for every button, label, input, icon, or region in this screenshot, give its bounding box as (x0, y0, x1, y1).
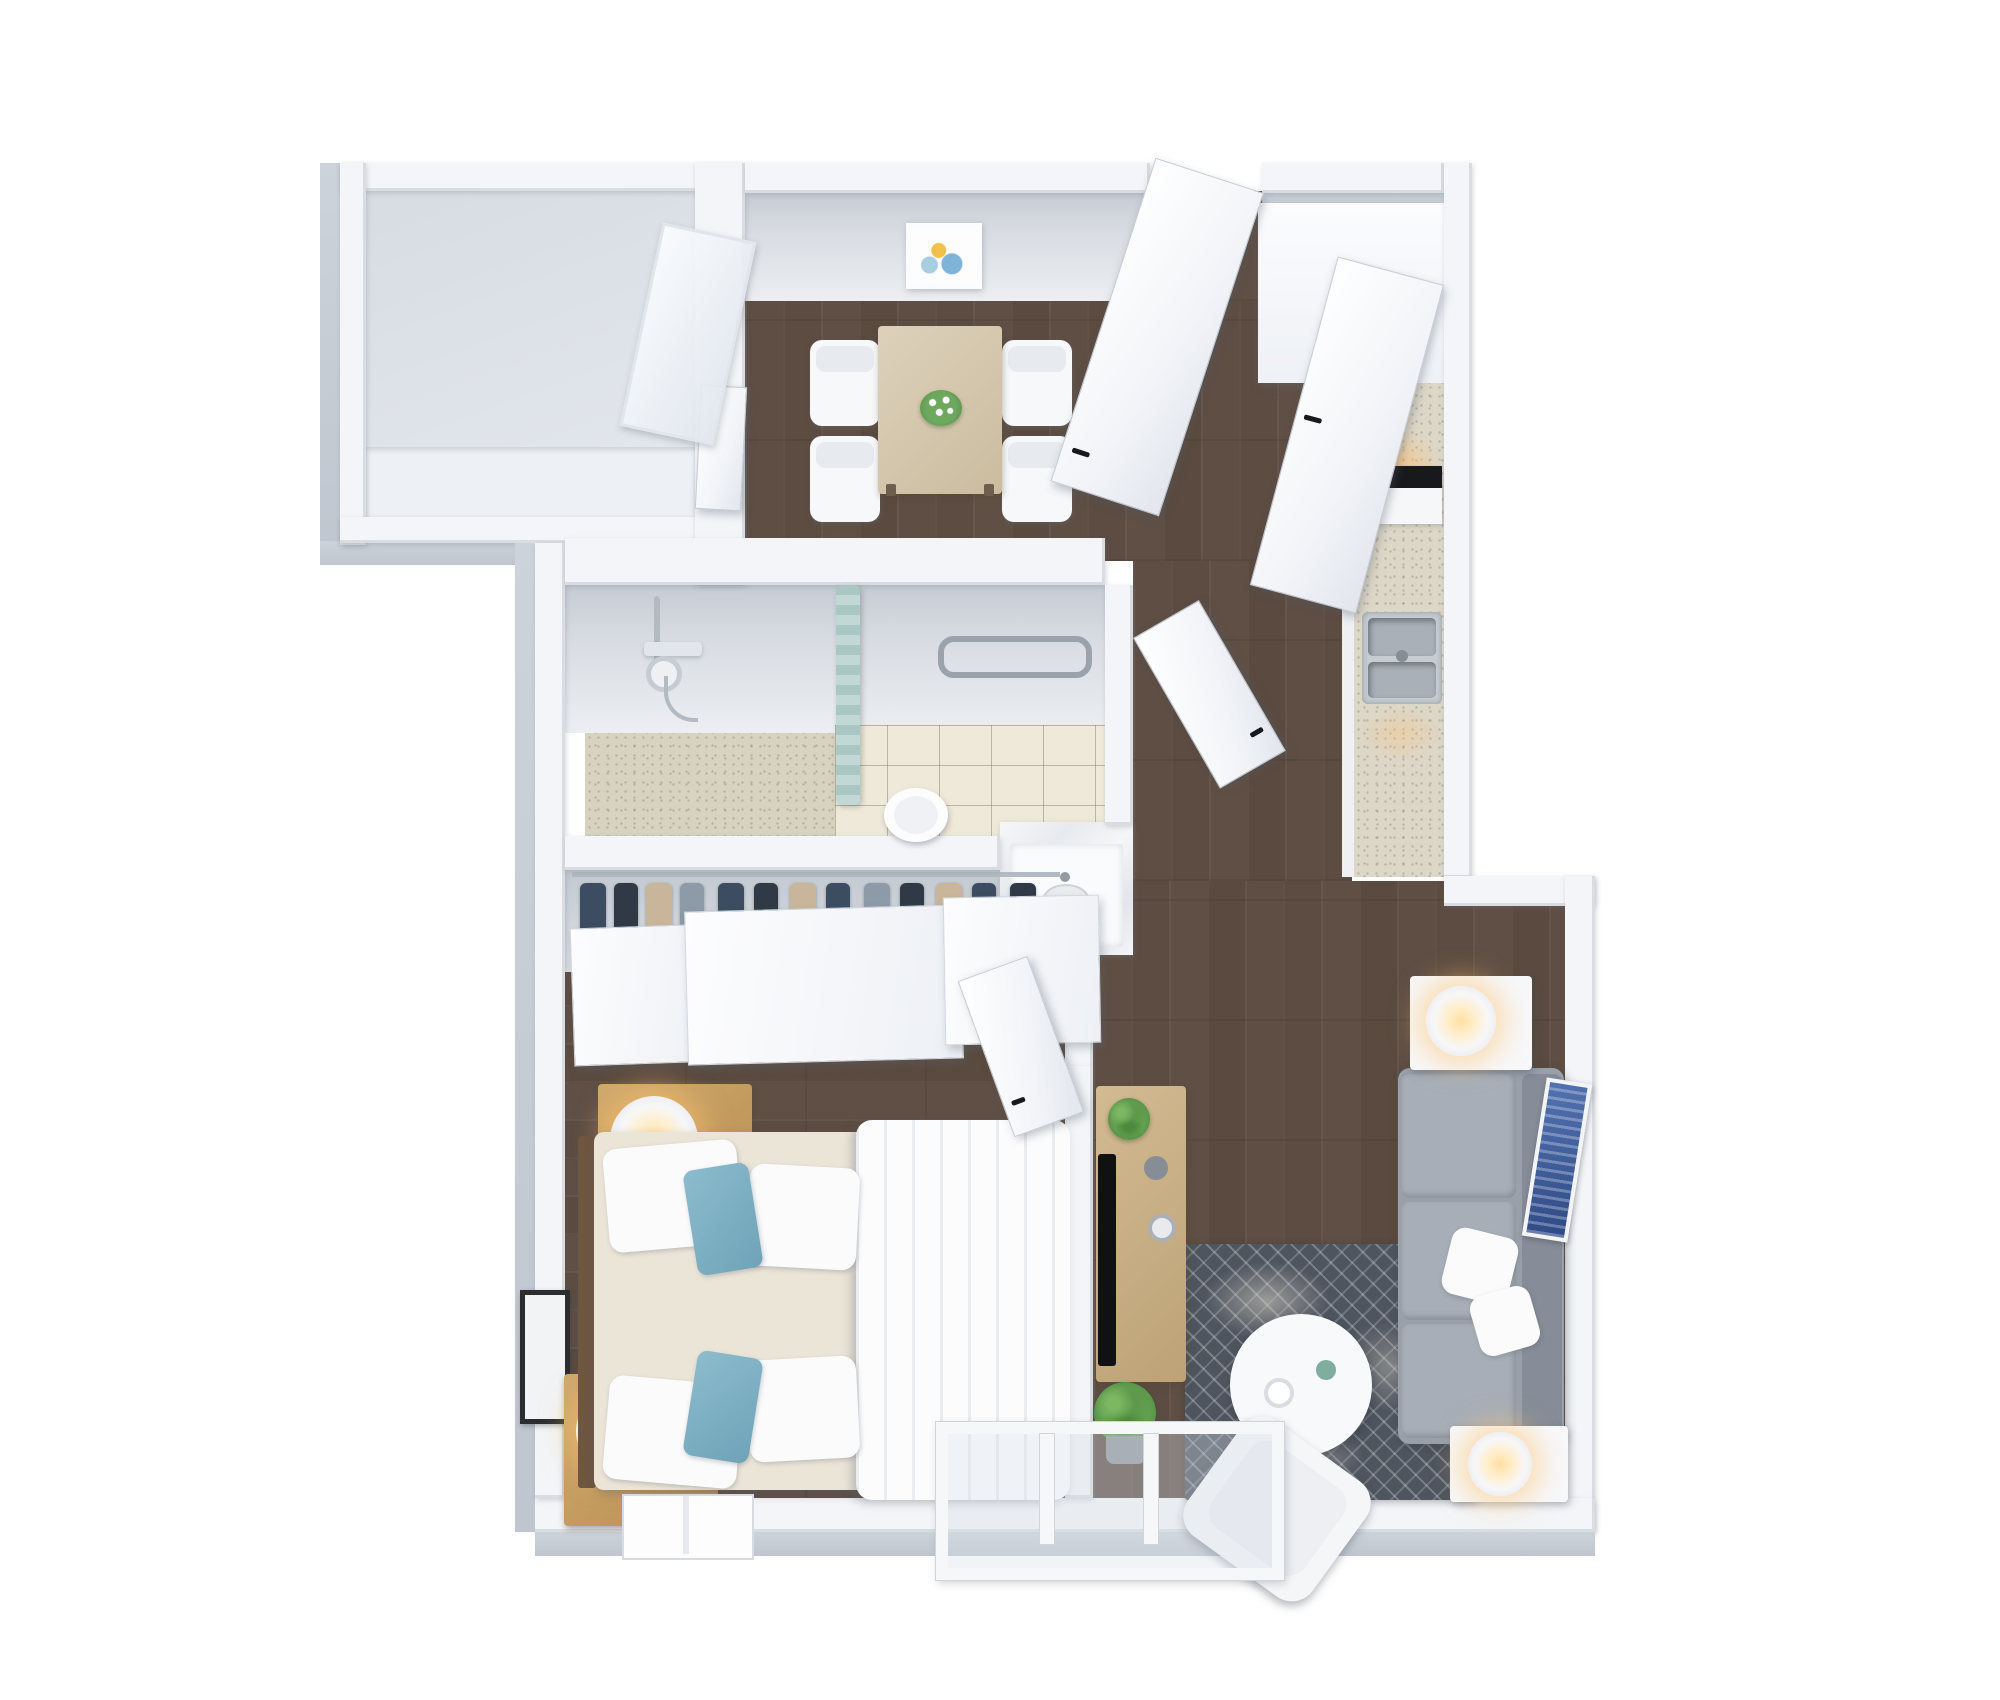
dining-chair (810, 436, 880, 522)
balcony-wall-left (340, 163, 366, 545)
flower-centerpiece (920, 390, 962, 426)
coffee-table-decor-dish (1264, 1378, 1294, 1408)
dining-wall-picture (906, 223, 982, 289)
window-mullion (683, 1496, 689, 1554)
table-leg (886, 484, 896, 496)
table-lamp-living-top (1426, 986, 1496, 1056)
bay-window (936, 1422, 1284, 1580)
balcony-wall-top (340, 163, 747, 191)
shower-curtain (836, 585, 860, 805)
console-decor-dish (1148, 1214, 1176, 1242)
chair-back (816, 346, 874, 372)
toilet-seat (894, 796, 938, 834)
floor-plan-canvas (0, 0, 2000, 1700)
top-wall-right (1262, 163, 1444, 193)
console-decor-bowl (1144, 1156, 1168, 1180)
shower-shelf (644, 642, 702, 656)
closet-sliding-door-2 (684, 904, 964, 1065)
chair-back (816, 442, 874, 468)
chair-back (1008, 346, 1066, 372)
door-handle (1303, 414, 1322, 423)
bed-pillow (745, 1355, 860, 1463)
television (1098, 1154, 1116, 1366)
dining-chair (1002, 340, 1072, 426)
table-lamp-living-bottom (1468, 1432, 1532, 1496)
bathroom-top-wall (565, 538, 1105, 585)
coffee-table-decor-teal (1316, 1360, 1336, 1380)
sink-bowl-bottom (1368, 662, 1436, 698)
top-wall-left (745, 163, 1150, 193)
vanity-faucet (1060, 872, 1070, 882)
bedroom-window (622, 1494, 754, 1560)
bed-pillow (745, 1163, 860, 1271)
window-mullion (1144, 1434, 1158, 1544)
sink-faucet (1396, 650, 1408, 662)
window-mullion (1040, 1434, 1054, 1544)
right-wall-kitchen (1444, 163, 1472, 878)
sofa-chaise-cushion (1402, 1074, 1516, 1198)
shower-floor (585, 733, 835, 838)
balcony-parapet (366, 447, 697, 517)
counter-light-lower (1358, 706, 1442, 762)
closet-top-wall (565, 836, 1000, 870)
door-handle (1011, 1097, 1026, 1106)
toilet (884, 788, 948, 842)
dining-chair (810, 340, 880, 426)
bedroom-wall-frame (520, 1290, 570, 1424)
door-handle (1249, 727, 1264, 738)
console-plant (1108, 1098, 1150, 1140)
towel-bar (938, 636, 1092, 678)
table-leg (984, 484, 994, 496)
bathroom-right-wall (1105, 585, 1133, 825)
door-handle (1071, 447, 1090, 457)
